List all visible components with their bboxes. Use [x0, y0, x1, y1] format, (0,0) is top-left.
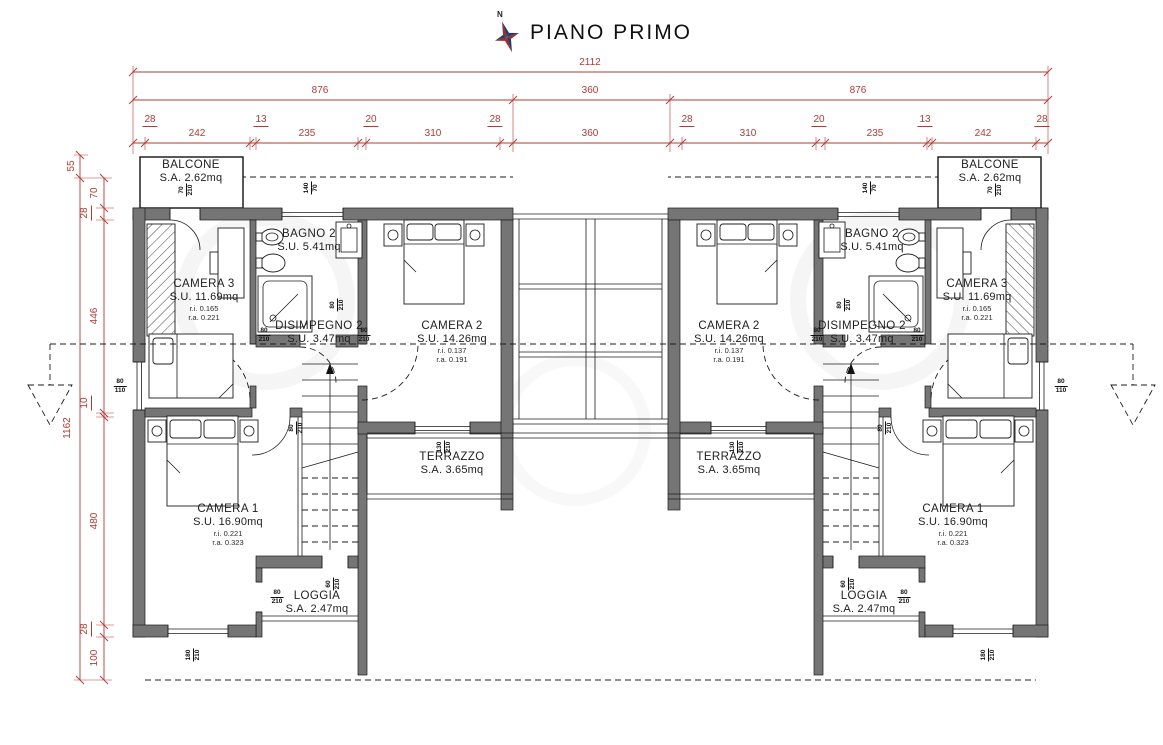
drawing-title-block: N PIANO PRIMO — [0, 0, 1163, 60]
right-unit-drawing — [668, 157, 1048, 675]
floor-plan-drawing — [0, 0, 1163, 745]
watermark — [183, 218, 962, 500]
page-title: PIANO PRIMO — [530, 21, 692, 45]
floor-plan-page: N PIANO PRIMO 21128763608762824213235203… — [0, 0, 1163, 745]
north-compass-icon — [489, 15, 525, 57]
